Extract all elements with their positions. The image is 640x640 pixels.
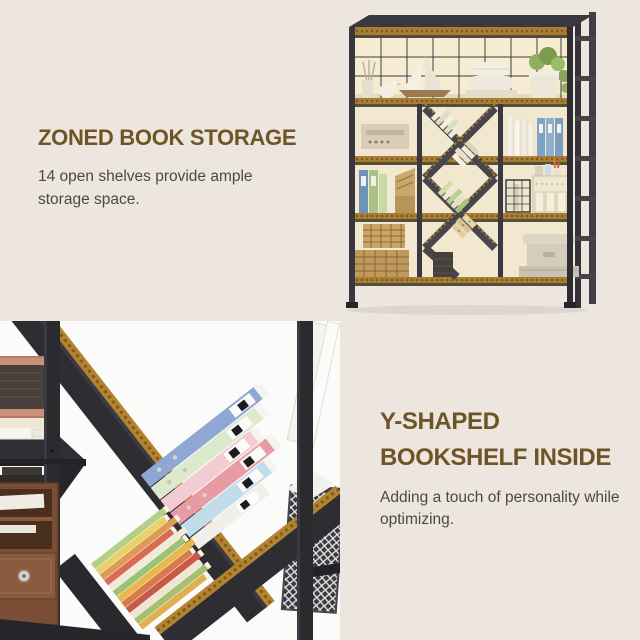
full-bookshelf-photo [337,6,637,316]
top-body-line-2: storage space. [38,188,318,211]
middle-post-right [498,104,503,277]
bottom-heading-line-2: BOOKSHELF INSIDE [380,440,630,476]
side-ladder-frame [575,12,596,308]
wooden-organizer [0,467,58,625]
floor-shadow [347,305,587,315]
woven-crates [355,224,409,277]
full-bookshelf-illustration [337,6,637,316]
top-text-block: ZONED BOOK STORAGE 14 open shelves provi… [38,126,318,211]
bookshelf-top-frame [349,15,593,38]
y-shelf-closeup-illustration [0,321,340,640]
middle-post-left [417,104,422,277]
top-body-line-1: 14 open shelves provide ample [38,165,318,188]
y-shelf-closeup-photo [0,321,340,640]
dark-crate [433,252,453,277]
bottom-text-block: Y-SHAPED BOOKSHELF INSIDE Adding a touch… [380,404,630,531]
bottom-body-line-1: Adding a touch of personality while [380,487,630,509]
bottom-body-line-2: optimizing. [380,509,630,531]
top-body-text: 14 open shelves provide ample storage sp… [38,165,318,211]
cream-book-stack [357,149,409,156]
bottom-heading: Y-SHAPED BOOKSHELF INSIDE [380,404,630,476]
bottom-heading-line-1: Y-SHAPED [380,404,630,440]
product-infographic-page: ZONED BOOK STORAGE 14 open shelves provi… [0,0,640,640]
top-heading: ZONED BOOK STORAGE [38,126,318,150]
bottom-body-text: Adding a touch of personality while opti… [380,487,630,531]
left-binders-and-organizer [359,168,415,213]
